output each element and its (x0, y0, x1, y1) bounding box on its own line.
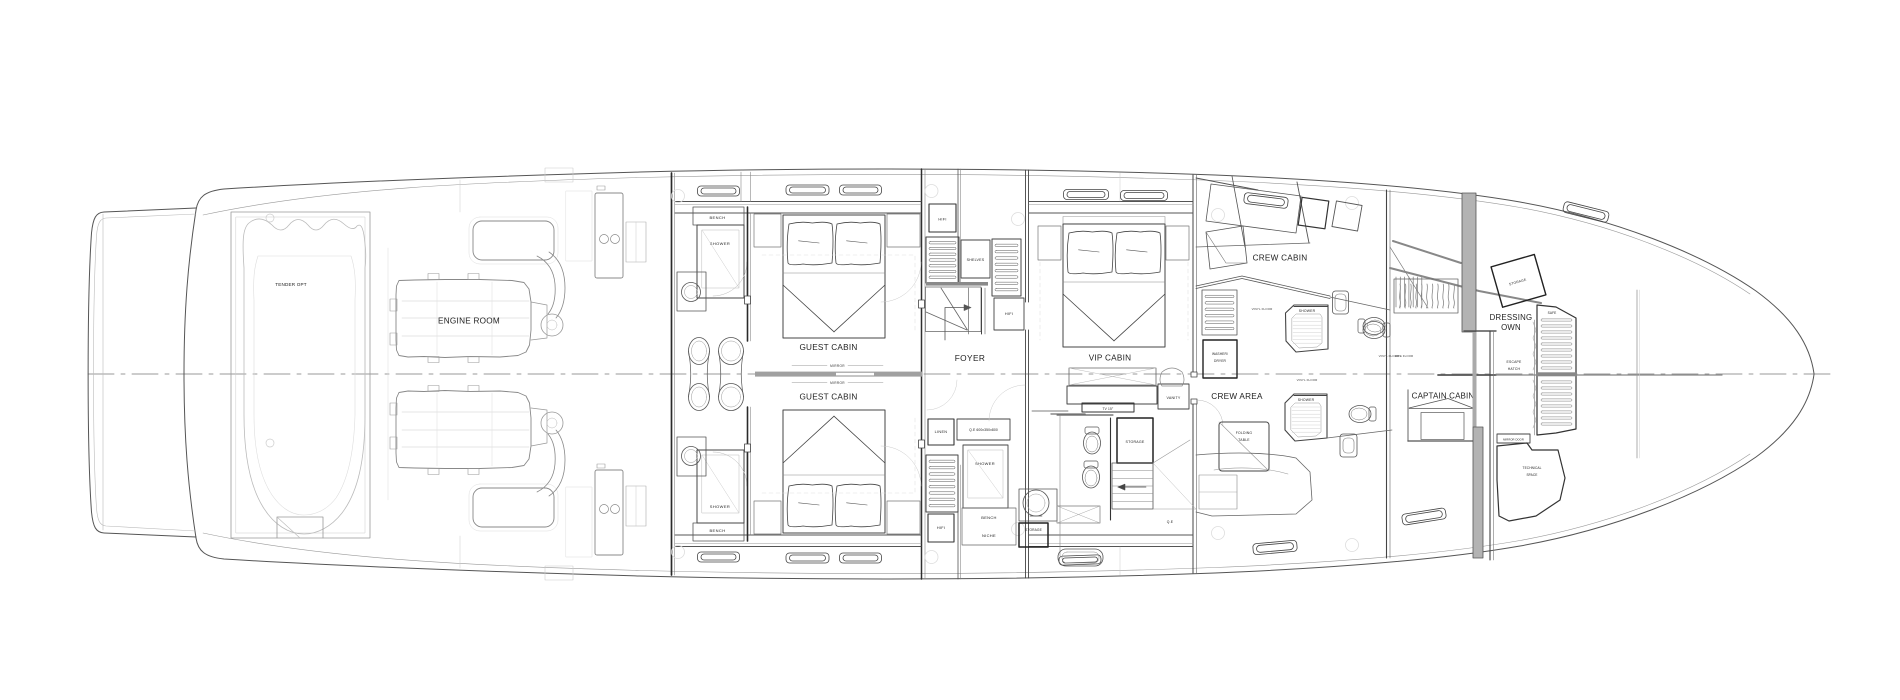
svg-text:HATCH: HATCH (1508, 367, 1521, 371)
svg-text:STORAGE: STORAGE (1126, 440, 1145, 444)
svg-text:SAFE: SAFE (1548, 311, 1557, 315)
svg-text:VANITY: VANITY (1167, 396, 1181, 400)
svg-text:ESCAPE: ESCAPE (1507, 360, 1522, 364)
svg-text:SHOWER: SHOWER (1299, 309, 1316, 313)
svg-text:ENGINE ROOM: ENGINE ROOM (438, 317, 500, 326)
svg-text:GUEST CABIN: GUEST CABIN (799, 343, 857, 352)
svg-text:CAPTAIN CABIN: CAPTAIN CABIN (1412, 392, 1475, 401)
svg-text:SHOWER: SHOWER (710, 241, 730, 246)
svg-text:FOLDING: FOLDING (1236, 431, 1253, 435)
svg-text:CREW AREA: CREW AREA (1211, 392, 1263, 401)
svg-text:SHELVES: SHELVES (967, 258, 985, 262)
svg-text:VINYL FLOOR: VINYL FLOOR (1252, 307, 1274, 311)
svg-text:OWN: OWN (1501, 323, 1521, 332)
svg-text:MIRROR: MIRROR (830, 381, 845, 385)
svg-text:HIFI: HIFI (938, 218, 946, 222)
svg-text:SHOWER: SHOWER (1298, 398, 1315, 402)
svg-text:GUEST CABIN: GUEST CABIN (799, 393, 857, 402)
svg-text:HIFI: HIFI (937, 526, 945, 530)
svg-text:BENCH: BENCH (709, 215, 725, 220)
svg-text:FOYER: FOYER (955, 353, 986, 363)
svg-text:SHOWER: SHOWER (710, 504, 730, 509)
svg-text:TECHNICAL: TECHNICAL (1523, 466, 1542, 470)
svg-text:NICHE: NICHE (982, 533, 996, 538)
svg-text:MIRROR: MIRROR (830, 364, 845, 368)
svg-text:LINEN: LINEN (935, 430, 948, 434)
svg-text:BENCH: BENCH (981, 515, 997, 520)
svg-text:Q.E 600x350x800: Q.E 600x350x800 (969, 428, 998, 432)
svg-text:CREW CABIN: CREW CABIN (1253, 254, 1308, 263)
svg-text:HIFI: HIFI (1005, 312, 1013, 316)
svg-text:MIRROR DOOR: MIRROR DOOR (1503, 438, 1524, 442)
svg-text:Q.E: Q.E (1167, 520, 1174, 524)
svg-text:RIVE FLOOR: RIVE FLOOR (1395, 354, 1414, 358)
svg-text:DRESSING: DRESSING (1490, 313, 1533, 322)
svg-text:BENCH: BENCH (709, 528, 725, 533)
svg-text:VIP CABIN: VIP CABIN (1089, 354, 1132, 363)
svg-text:TABLE: TABLE (1238, 438, 1250, 442)
svg-text:DRYER: DRYER (1214, 359, 1227, 363)
svg-text:WASHER/: WASHER/ (1212, 352, 1228, 356)
svg-text:TENDER OPT: TENDER OPT (275, 282, 307, 287)
svg-text:SPACE: SPACE (1526, 473, 1537, 477)
svg-text:STORAGE: STORAGE (1025, 528, 1042, 532)
svg-text:VINYL FLOOR: VINYL FLOOR (1297, 378, 1319, 382)
svg-text:TV 15°: TV 15° (1103, 407, 1115, 411)
